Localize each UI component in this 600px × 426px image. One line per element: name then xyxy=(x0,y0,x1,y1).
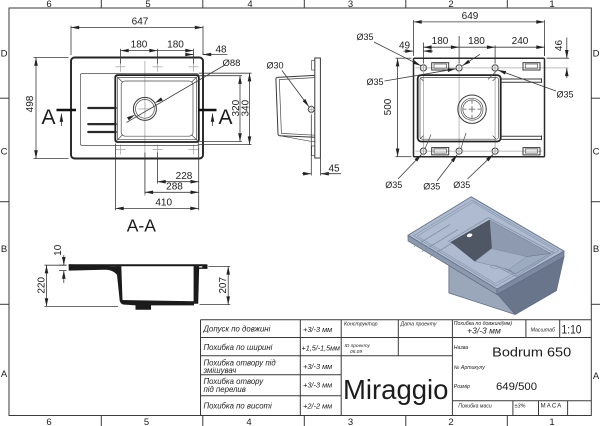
svg-text:2: 2 xyxy=(448,0,453,10)
svg-text:Дата проекту: Дата проекту xyxy=(400,322,437,328)
svg-text:+3/-3 мм: +3/-3 мм xyxy=(303,325,332,334)
svg-text:6: 6 xyxy=(46,417,51,426)
svg-text:4: 4 xyxy=(246,417,251,426)
svg-text:Ø35: Ø35 xyxy=(453,180,470,190)
svg-text:220: 220 xyxy=(36,277,47,294)
svg-text:Ø35: Ø35 xyxy=(356,32,373,42)
svg-text:B: B xyxy=(1,244,7,255)
svg-text:D: D xyxy=(1,49,8,60)
svg-text:49: 49 xyxy=(399,41,411,52)
svg-text:Ø35: Ø35 xyxy=(366,77,383,87)
svg-text:340: 340 xyxy=(241,99,252,116)
svg-text:+3/-3 мм: +3/-3 мм xyxy=(467,326,501,336)
svg-text:5: 5 xyxy=(144,417,149,426)
svg-text:1: 1 xyxy=(549,417,554,426)
svg-text:410: 410 xyxy=(155,198,172,209)
svg-text:6: 6 xyxy=(46,0,51,10)
svg-text:Масштаб: Масштаб xyxy=(531,328,556,334)
svg-text:змішувач: змішувач xyxy=(203,366,237,375)
svg-text:Ø30: Ø30 xyxy=(267,61,284,71)
svg-text:№ Артикулу: № Артикулу xyxy=(454,365,485,371)
svg-text:45: 45 xyxy=(328,163,340,174)
svg-text:+1,5/-1,5мм: +1,5/-1,5мм xyxy=(302,344,341,353)
svg-text:+2/-2 мм: +2/-2 мм xyxy=(303,402,332,411)
svg-text:2: 2 xyxy=(448,417,453,426)
svg-text:Допуск по довжині: Допуск по довжині xyxy=(203,325,271,334)
svg-text:649: 649 xyxy=(462,11,479,22)
svg-text:207: 207 xyxy=(218,277,229,294)
svg-text:Розмір: Розмір xyxy=(454,384,470,390)
svg-text:228: 228 xyxy=(176,171,193,182)
svg-text:C: C xyxy=(593,147,600,158)
svg-text:180: 180 xyxy=(131,40,148,51)
svg-text:180: 180 xyxy=(167,40,184,51)
svg-text:C: C xyxy=(1,147,8,158)
svg-text:180: 180 xyxy=(468,36,485,47)
svg-text:1:10: 1:10 xyxy=(562,325,582,337)
svg-text:Ø35: Ø35 xyxy=(385,180,402,190)
svg-text:+3/-3 мм: +3/-3 мм xyxy=(303,362,332,371)
svg-text:05.09: 05.09 xyxy=(350,349,362,355)
svg-text:48: 48 xyxy=(215,44,227,55)
svg-text:240: 240 xyxy=(512,36,529,47)
svg-text:±3%: ±3% xyxy=(515,403,526,409)
svg-text:Miraggio: Miraggio xyxy=(343,374,448,405)
svg-text:Конструктор: Конструктор xyxy=(344,322,378,328)
svg-text:A: A xyxy=(42,106,56,129)
svg-text:Похибка маси: Похибка маси xyxy=(458,404,492,410)
svg-text:+3/-3 мм: +3/-3 мм xyxy=(303,381,332,390)
svg-text:Назва: Назва xyxy=(454,345,469,351)
svg-text:3: 3 xyxy=(348,417,353,426)
svg-text:5: 5 xyxy=(145,0,150,10)
svg-text:A: A xyxy=(1,369,8,380)
svg-text:500: 500 xyxy=(383,98,394,115)
svg-text:3: 3 xyxy=(348,0,353,10)
svg-text:Похибка по висоті: Похибка по висоті xyxy=(204,402,273,411)
svg-text:Похибка по ширині: Похибка по ширині xyxy=(204,343,273,352)
svg-text:1: 1 xyxy=(549,0,554,10)
svg-text:МАСА: МАСА xyxy=(541,403,563,409)
svg-text:288: 288 xyxy=(166,181,183,192)
svg-text:498: 498 xyxy=(25,95,36,112)
svg-text:A-A: A-A xyxy=(127,216,157,236)
svg-text:B: B xyxy=(593,244,599,255)
svg-text:647: 647 xyxy=(132,17,149,28)
svg-text:649/500: 649/500 xyxy=(496,381,537,393)
svg-text:4: 4 xyxy=(247,0,252,10)
svg-text:A: A xyxy=(593,371,600,382)
svg-text:180: 180 xyxy=(432,36,449,47)
svg-text:Ø35: Ø35 xyxy=(423,182,440,192)
svg-text:ID проекту: ID проекту xyxy=(345,343,371,349)
svg-text:під перелив: під перелив xyxy=(204,385,246,394)
svg-text:46: 46 xyxy=(554,40,565,52)
svg-text:10: 10 xyxy=(53,244,64,256)
svg-text:Ø88: Ø88 xyxy=(223,58,241,69)
svg-text:D: D xyxy=(593,49,600,60)
svg-text:Bodrum 650: Bodrum 650 xyxy=(492,346,571,360)
svg-text:Ø35: Ø35 xyxy=(556,90,573,100)
